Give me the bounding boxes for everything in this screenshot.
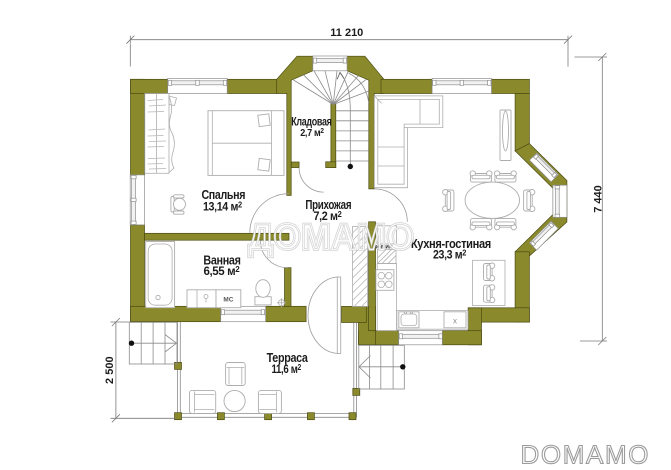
svg-text:Терраса: Терраса bbox=[267, 350, 309, 365]
svg-text:2 500: 2 500 bbox=[104, 356, 116, 384]
svg-text:Прихожая: Прихожая bbox=[305, 197, 351, 212]
svg-text:x: x bbox=[453, 316, 457, 325]
svg-text:МС: МС bbox=[223, 296, 233, 303]
svg-text:6,55 м2: 6,55 м2 bbox=[204, 265, 241, 278]
svg-text:ДОМАМО: ДОМАМО bbox=[248, 217, 414, 258]
svg-text:13,14 м2: 13,14 м2 bbox=[203, 201, 243, 214]
svg-text:11,6 м2: 11,6 м2 bbox=[271, 363, 301, 376]
svg-text:2,7 м2: 2,7 м2 bbox=[300, 126, 324, 139]
svg-text:11 210: 11 210 bbox=[330, 27, 363, 39]
svg-text:7 440: 7 440 bbox=[593, 185, 605, 213]
svg-text:23,3 м2: 23,3 м2 bbox=[433, 248, 467, 261]
